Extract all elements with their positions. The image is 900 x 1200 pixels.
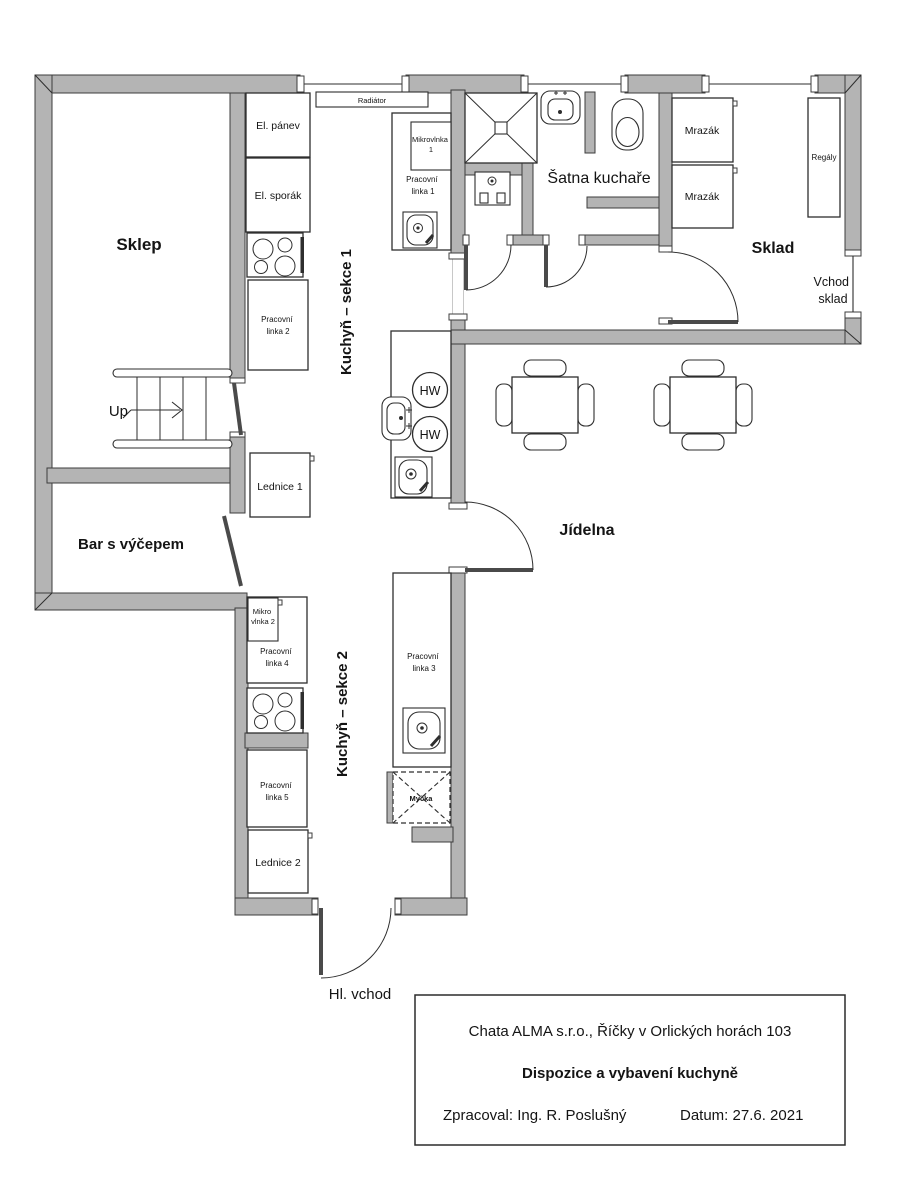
sink-icon xyxy=(403,708,445,753)
dishwasher-label: Myčka xyxy=(410,794,434,803)
fridge-2: Lednice 2 xyxy=(248,830,312,893)
dishwasher: Myčka xyxy=(393,772,450,823)
worktop-1: Mikrovlnka 1 Pracovní linka 1 xyxy=(392,113,451,250)
title-block-date: Datum: 27.6. 2021 xyxy=(680,1107,803,1124)
title-block-author: Zpracoval: Ing. R. Poslušný xyxy=(443,1107,627,1124)
up-arrow-icon xyxy=(123,402,182,418)
worktop-5: Pracovní linka 5 xyxy=(247,750,307,827)
room-label-kuchyn-1: Kuchyň – sekce 1 xyxy=(338,249,355,375)
staircase: Up xyxy=(109,369,232,448)
room-label-bar: Bar s výčepem xyxy=(78,536,184,553)
shelving: Regály xyxy=(808,98,840,217)
main-entrance-label: Hl. vchod xyxy=(329,986,392,1003)
worktop-4: Mikro vlnka 2 Pracovní linka 4 xyxy=(247,597,307,683)
freezer-2: Mrazák xyxy=(672,165,737,228)
microwave-2-label: Mikro vlnka 2 xyxy=(251,607,275,626)
freezer-2-label: Mrazák xyxy=(685,191,720,203)
door-satna xyxy=(546,245,587,287)
hw-2-label: HW xyxy=(420,428,441,442)
worktop-3: Pracovní linka 3 xyxy=(393,573,451,767)
dining-table-2 xyxy=(654,360,752,450)
cooktop-2-icon xyxy=(247,688,304,733)
dining-table-1 xyxy=(496,360,594,450)
door-jidelna xyxy=(465,502,533,570)
radiator-label: Radiátor xyxy=(358,96,387,105)
wall-basin-icon xyxy=(382,397,412,440)
sink-icon xyxy=(395,457,432,497)
room-label-sklad: Sklad xyxy=(752,240,795,257)
window-1 xyxy=(297,76,409,92)
shelving-label: Regály xyxy=(812,153,837,162)
washbasin-icon xyxy=(541,91,580,124)
fridge-1-label: Lednice 1 xyxy=(257,481,303,493)
title-block-title: Dispozice a vybavení kuchyně xyxy=(522,1065,738,1082)
room-label-satna: Šatna kuchaře xyxy=(547,168,650,187)
floor-plan-page: Up Radiátor El. pánev El. sporák Pracovn… xyxy=(0,0,900,1200)
door-stairs xyxy=(234,383,241,435)
hot-water-heater-1: HW xyxy=(413,373,448,408)
hw-1-label: HW xyxy=(420,384,441,398)
fridge-1: Lednice 1 xyxy=(250,453,314,517)
door-bar xyxy=(224,516,241,586)
title-block: Chata ALMA s.r.o., Říčky v Orlických hor… xyxy=(415,995,845,1145)
room-label-kuchyn-2: Kuchyň – sekce 2 xyxy=(334,651,351,777)
door-shower-room xyxy=(466,245,511,290)
window-2 xyxy=(521,76,628,92)
room-label-jidelna: Jídelna xyxy=(559,522,614,539)
door-main-entrance xyxy=(321,908,391,978)
floor-plan-svg: Up Radiátor El. pánev El. sporák Pracovn… xyxy=(0,0,900,1200)
fridge-2-label: Lednice 2 xyxy=(255,857,301,869)
small-basin-icon xyxy=(475,172,510,205)
window-3 xyxy=(702,76,818,92)
freezer-1-label: Mrazák xyxy=(685,125,720,137)
toilet-icon xyxy=(612,99,643,150)
radiator: Radiátor xyxy=(316,92,428,107)
water-heater-counter: HW HW xyxy=(382,331,451,498)
vchod-sklad-label: Vchod sklad xyxy=(814,275,853,306)
el-panev-label: El. pánev xyxy=(256,120,301,132)
electric-stove: El. sporák xyxy=(246,158,310,232)
freezer-1: Mrazák xyxy=(672,98,737,162)
hot-water-heater-2: HW xyxy=(413,417,448,452)
room-label-sklep: Sklep xyxy=(116,235,161,254)
door-sklad xyxy=(668,252,738,322)
shower-icon xyxy=(465,93,537,163)
title-block-address: Chata ALMA s.r.o., Říčky v Orlických hor… xyxy=(469,1023,792,1040)
electric-pan: El. pánev xyxy=(246,93,310,157)
sink-icon xyxy=(403,212,437,248)
cooktop-1-icon xyxy=(247,233,304,277)
stairs-up-label: Up xyxy=(109,403,128,420)
worktop-2: Pracovní linka 2 xyxy=(248,280,308,370)
el-sporak-label: El. sporák xyxy=(255,190,302,202)
